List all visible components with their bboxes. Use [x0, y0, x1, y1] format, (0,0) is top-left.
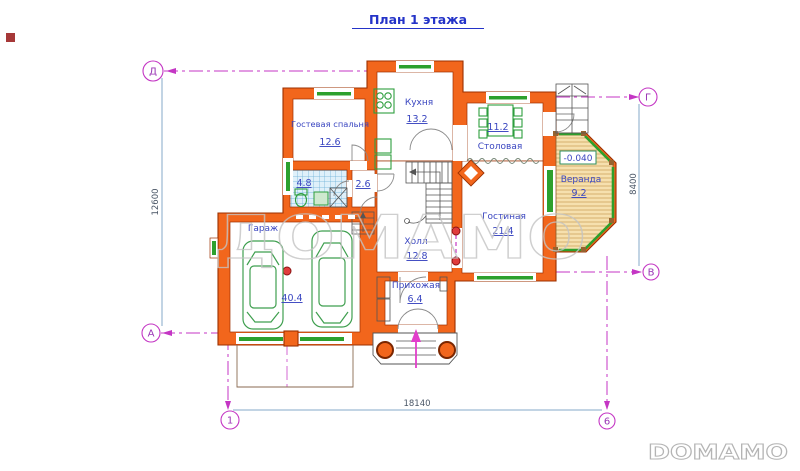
logo-text: DOMAMO: [648, 440, 788, 464]
area-bedroom: 12.6: [319, 137, 340, 148]
exterior-stairs: [556, 84, 588, 133]
axis-v: В: [648, 268, 655, 279]
floor-plan-page: План 1 этажа: [0, 0, 800, 471]
axis-d: Д: [149, 67, 157, 78]
axis-a: А: [148, 329, 155, 340]
label-bedroom: Гостевая спальня: [291, 119, 369, 129]
level-mark: -0.040: [560, 151, 596, 164]
area-kitchen: 13.2: [406, 114, 427, 125]
area-entry: 6.4: [407, 294, 422, 305]
level-mark-value: -0.040: [563, 154, 592, 164]
entrance-porch: [373, 329, 457, 368]
area-closet: 2.6: [355, 179, 370, 190]
corner-red-square: [6, 33, 15, 42]
axis-g: Г: [645, 93, 651, 104]
label-entry: Прихожая: [392, 281, 440, 291]
area-garage: 40.4: [281, 293, 302, 304]
watermark-text: ДОМАМО: [214, 203, 586, 273]
axis-1: 1: [227, 416, 233, 427]
driveway-outline: [237, 345, 353, 387]
floor-plan-drawing: Гостевая спальня 12.6 Кухня 13.2 11.2 Ст…: [0, 0, 800, 471]
label-dining: Столовая: [478, 142, 523, 152]
dim-right: 8400: [629, 173, 639, 195]
dim-bottom: 18140: [403, 399, 430, 409]
room-bedroom: [293, 99, 365, 161]
label-kitchen: Кухня: [405, 98, 433, 108]
area-bathroom: 4.8: [296, 178, 311, 189]
axis-6: 6: [604, 417, 610, 428]
dim-left: 12600: [151, 188, 161, 215]
garage-gate: [236, 331, 352, 346]
area-veranda: 9.2: [571, 188, 586, 199]
label-veranda: Веранда: [561, 175, 602, 185]
area-dining: 11.2: [487, 122, 508, 133]
